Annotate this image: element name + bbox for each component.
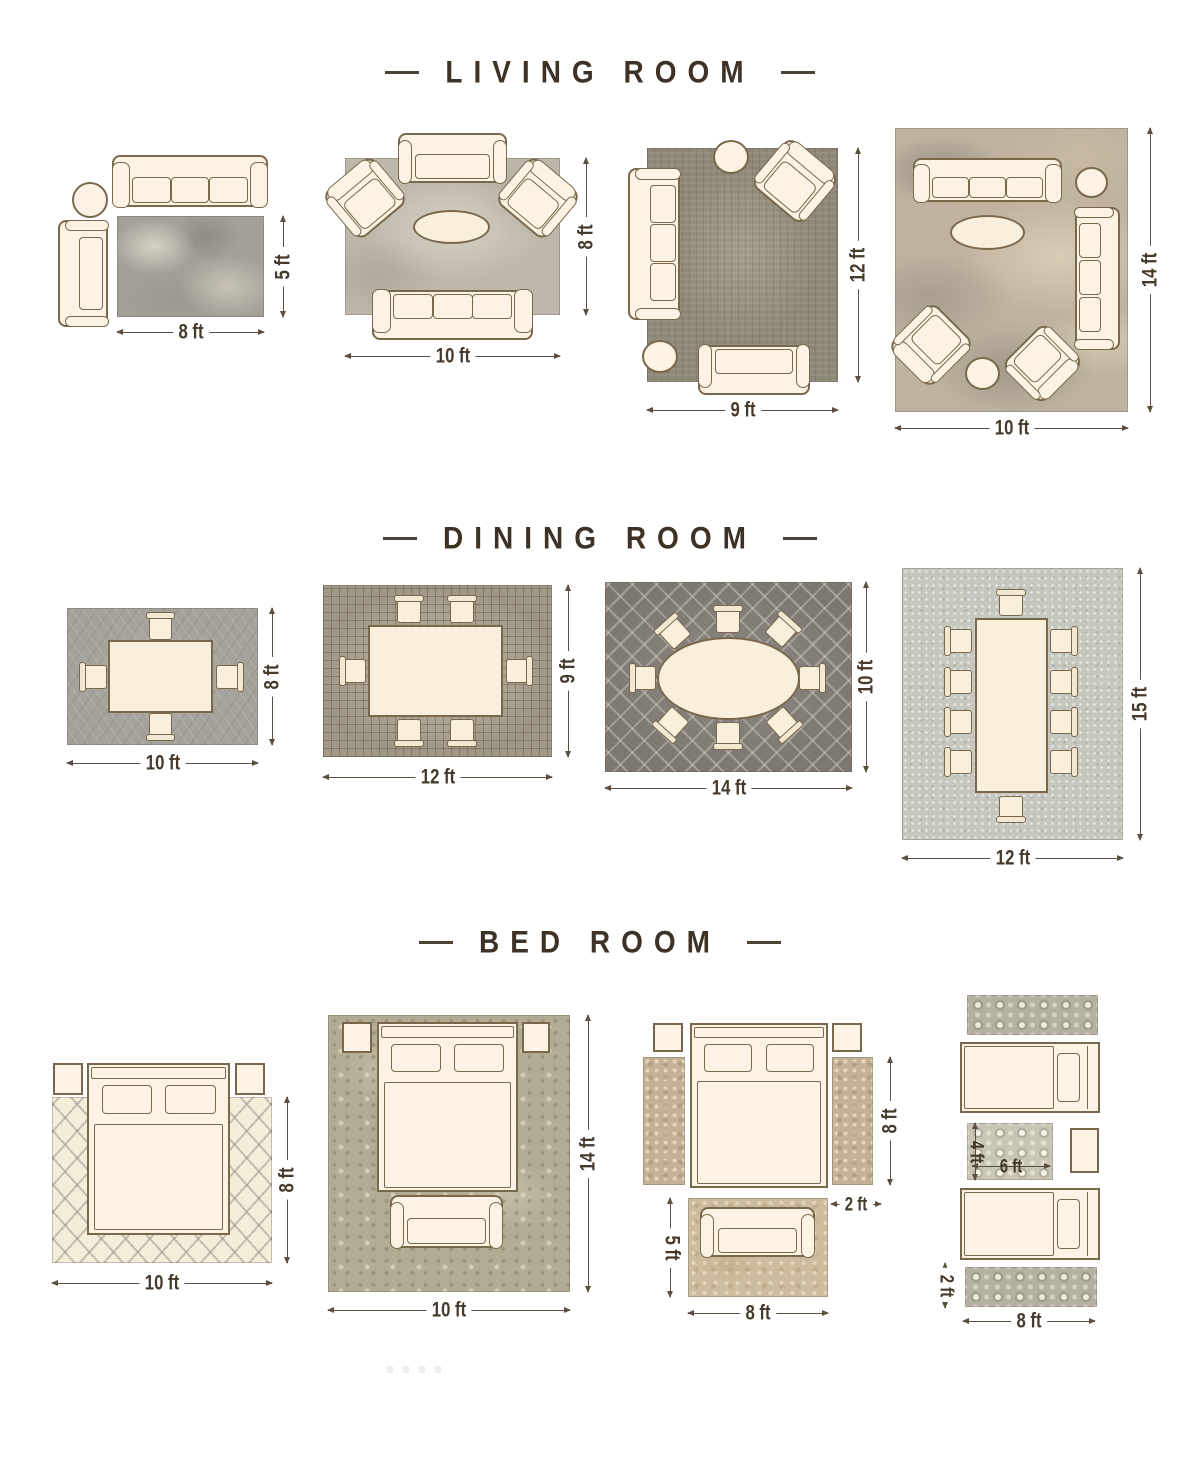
rug-width-dimension: 10 ft xyxy=(67,763,258,764)
cushion xyxy=(1079,260,1101,295)
sofa-icon xyxy=(112,155,268,207)
oval-coffee-table-icon xyxy=(950,215,1025,250)
round-side-table-icon xyxy=(713,140,749,174)
round-side-table-icon xyxy=(1075,167,1108,198)
pillow xyxy=(1057,1199,1080,1249)
pillow xyxy=(454,1044,503,1072)
chair-back xyxy=(629,663,636,693)
dimension-label: 10 ft xyxy=(427,1299,472,1324)
rug-width-dimension: 8 ft xyxy=(117,332,264,333)
chair-seat xyxy=(634,666,656,690)
chair-seat xyxy=(506,659,528,683)
living-room-layout-10x8: 10 ft 8 ft xyxy=(332,128,607,368)
chair-back xyxy=(996,816,1026,823)
chair-back xyxy=(713,605,743,612)
rug-height-dimension: 12 ft xyxy=(858,148,859,382)
dining-chair-icon xyxy=(1048,668,1075,696)
dining-chair-icon xyxy=(1048,627,1075,655)
dining-chair-icon xyxy=(147,711,174,738)
chair-back xyxy=(713,743,743,750)
dimension-label: 12 ft xyxy=(990,847,1035,872)
chair-seat xyxy=(397,600,421,623)
rug-height-dimension: 14 ft xyxy=(1150,128,1151,412)
dimension-label: 6 ft xyxy=(995,1156,1028,1178)
section-header-living-room: LIVING ROOM xyxy=(0,56,1200,88)
cushion xyxy=(79,237,103,309)
cushion xyxy=(718,1228,798,1252)
header-dash-right xyxy=(747,941,781,944)
dining-chair-icon xyxy=(947,627,974,655)
chair-seat xyxy=(999,796,1023,818)
cushion xyxy=(472,294,512,319)
chair-back xyxy=(944,747,951,777)
sofa-arm xyxy=(635,308,681,320)
loveseat-icon xyxy=(698,345,810,395)
chair-arm xyxy=(65,220,109,231)
chair-back xyxy=(1071,747,1078,777)
chair-back xyxy=(237,662,244,692)
sofa-arm xyxy=(698,344,712,388)
dining-room-layout-10x8: 10 ft 8 ft xyxy=(60,600,300,775)
dimension-label: 10 ft xyxy=(989,417,1034,442)
rug-size-guide: LIVING ROOM 8 ft 5 ft xyxy=(0,0,1200,1467)
blanket xyxy=(384,1082,511,1187)
blanket xyxy=(697,1081,822,1183)
dining-chair-icon xyxy=(342,657,368,685)
dimension-label: 9 ft xyxy=(557,651,582,690)
dining-chair-icon xyxy=(448,598,476,625)
living-room-layout-10x14: 10 ft 14 ft xyxy=(888,120,1178,450)
dining-table-icon xyxy=(975,618,1048,793)
cushion xyxy=(650,185,675,223)
dimension-label: 10 ft xyxy=(430,345,475,370)
mattress xyxy=(964,1192,1054,1256)
headboard xyxy=(381,1026,514,1038)
header-dash-left xyxy=(385,71,419,74)
chair-seat xyxy=(149,713,172,736)
chair-seat xyxy=(999,594,1023,616)
chair-seat xyxy=(799,666,821,690)
dining-table-icon xyxy=(108,640,213,713)
bed-icon xyxy=(377,1022,518,1192)
dimension-label: 8 ft xyxy=(1011,1310,1047,1335)
chaise-chair-icon xyxy=(58,220,108,327)
chair-back xyxy=(146,734,175,741)
cushion xyxy=(1079,223,1101,258)
nightstand-icon xyxy=(1070,1128,1099,1173)
dining-chair-icon xyxy=(504,657,530,685)
cushion xyxy=(715,349,793,373)
chair-back xyxy=(79,662,86,692)
chair-seat xyxy=(716,610,740,633)
sofa-arm xyxy=(493,140,507,184)
sofa-arm xyxy=(372,289,391,333)
bench-icon xyxy=(700,1207,815,1257)
chair-seat xyxy=(149,617,172,640)
cushion xyxy=(969,177,1006,199)
rug-height-dimension: 8 ft xyxy=(287,1097,288,1263)
bench-arm xyxy=(801,1214,815,1258)
dining-chair-icon xyxy=(797,664,823,692)
nightstand-icon xyxy=(832,1023,862,1052)
dining-chair-icon xyxy=(997,794,1025,820)
sofa-arm xyxy=(1074,339,1114,350)
sofa-arm xyxy=(514,289,533,333)
cushion xyxy=(1006,177,1043,199)
chair-back xyxy=(944,626,951,656)
rug-width-dimension: 9 ft xyxy=(647,410,838,411)
living-room-layout-8x5: 8 ft 5 ft xyxy=(52,148,302,353)
chair-seat xyxy=(84,665,107,689)
dining-chair-icon xyxy=(947,668,974,696)
section-header-dining-room: DINING ROOM xyxy=(0,522,1200,554)
chair-back xyxy=(447,740,477,747)
header-dash-right xyxy=(783,537,817,540)
rug-width-dimension: 10 ft xyxy=(895,428,1128,429)
dimension-label: 8 ft xyxy=(261,657,286,696)
sofa-arm xyxy=(796,344,810,388)
chair-back xyxy=(339,656,346,686)
chair-back xyxy=(447,595,477,602)
runner-width-dimension: 8 ft xyxy=(963,1321,1095,1322)
cushion xyxy=(1079,297,1101,332)
headboard xyxy=(694,1027,824,1038)
nightstand-icon xyxy=(53,1063,83,1095)
chair-seat xyxy=(450,719,474,742)
dining-room-layout-14x10: 14 ft 10 ft xyxy=(600,575,885,810)
chair-back xyxy=(1071,707,1078,737)
runner-height-dimension: 8 ft xyxy=(890,1057,891,1185)
chair-seat xyxy=(344,659,366,683)
nightstand-icon xyxy=(235,1063,265,1095)
rug-height-dimension: 5 ft xyxy=(670,1198,671,1297)
bench-arm xyxy=(489,1202,503,1249)
runner-rug xyxy=(643,1057,685,1185)
chair-seat xyxy=(949,670,972,694)
dimension-label: 8 ft xyxy=(276,1160,301,1199)
cushion xyxy=(650,224,675,262)
rug-height-dimension: 14 ft xyxy=(588,1015,589,1292)
rug-height-dimension: 5 ft xyxy=(283,216,284,317)
cushion xyxy=(171,177,210,203)
sofa-arm xyxy=(1045,164,1062,203)
section-title: DINING ROOM xyxy=(443,520,757,556)
sofa-arm xyxy=(398,140,412,184)
dimension-label: 5 ft xyxy=(659,1228,684,1267)
dining-chair-icon xyxy=(395,598,423,625)
rug-width-dimension: 14 ft xyxy=(605,788,852,789)
sofa-icon xyxy=(913,158,1062,202)
pillow xyxy=(391,1044,440,1072)
chair-back xyxy=(526,656,533,686)
chair-seat xyxy=(949,750,972,774)
dimension-label: 8 ft xyxy=(879,1101,904,1140)
pillow xyxy=(165,1085,215,1114)
living-room-layout-9x12: 9 ft 12 ft xyxy=(618,138,878,428)
chair-back xyxy=(1071,667,1078,697)
dining-chair-icon xyxy=(1048,708,1075,736)
bench-arm xyxy=(390,1202,404,1249)
runner-rug xyxy=(832,1057,873,1185)
pillow xyxy=(1057,1053,1080,1103)
faint-artifact xyxy=(387,1366,443,1373)
dining-chair-icon xyxy=(997,592,1025,618)
dining-table-icon xyxy=(368,625,503,717)
chair-back xyxy=(394,740,424,747)
dimension-label: 14 ft xyxy=(706,777,751,802)
rug-width-dimension: 12 ft xyxy=(323,777,552,778)
rug-height-dimension: 8 ft xyxy=(586,158,587,315)
cushion xyxy=(407,1218,486,1244)
loveseat-icon xyxy=(398,133,507,183)
round-side-table-icon xyxy=(965,357,1000,390)
dining-chair-icon xyxy=(714,608,742,635)
nightstand-icon xyxy=(522,1022,550,1053)
chair-seat xyxy=(949,710,972,734)
bench-icon xyxy=(390,1195,503,1248)
runner-width-dimension: 2 ft xyxy=(831,1204,881,1205)
header-dash-left xyxy=(419,941,453,944)
chair-seat xyxy=(216,665,239,689)
round-side-table-icon xyxy=(72,182,108,218)
runner-rug xyxy=(965,1267,1097,1307)
dimension-label: 10 ft xyxy=(140,752,185,777)
dimension-label: 10 ft xyxy=(855,653,880,701)
rug-height-dimension: 8 ft xyxy=(272,608,273,745)
cushion xyxy=(132,177,171,203)
nightstand-icon xyxy=(653,1023,683,1052)
chair-seat xyxy=(716,722,740,745)
bedroom-layout-twin-runners: 4 ft 6 ft 2 ft 8 ft xyxy=(930,990,1185,1335)
dimension-label: 12 ft xyxy=(847,241,872,289)
bedroom-layout-runners-5x8: 8 ft 2 ft 5 ft 8 ft xyxy=(635,1015,900,1330)
dining-chair-icon xyxy=(147,615,174,642)
dimension-label: 10 ft xyxy=(140,1272,185,1297)
dining-room-layout-12x15: 12 ft 15 ft xyxy=(895,560,1155,870)
dining-chair-icon xyxy=(1048,748,1075,776)
sofa-icon xyxy=(372,290,533,340)
sofa-arm xyxy=(1074,207,1114,218)
dining-room-layout-12x9: 12 ft 9 ft xyxy=(318,578,580,793)
chair-back xyxy=(394,595,424,602)
dimension-label: 5 ft xyxy=(272,247,297,286)
nightstand-icon xyxy=(342,1022,372,1053)
cushion xyxy=(415,154,491,178)
rug-height-dimension: 4 ft xyxy=(975,1123,976,1180)
header-dash-right xyxy=(781,71,815,74)
dimension-label: 2 ft xyxy=(840,1194,873,1216)
mattress xyxy=(964,1046,1054,1109)
chair-seat xyxy=(450,600,474,623)
dining-chair-icon xyxy=(947,708,974,736)
dimension-label: 14 ft xyxy=(1139,246,1164,294)
chair-back xyxy=(944,667,951,697)
rug-width-dimension: 8 ft xyxy=(688,1313,828,1314)
oval-coffee-table-icon xyxy=(413,210,490,244)
chair-seat xyxy=(1050,710,1073,734)
bed-icon xyxy=(87,1063,230,1235)
round-side-table-icon xyxy=(642,340,678,373)
cushion xyxy=(932,177,969,199)
rug xyxy=(117,216,264,317)
rug-height-dimension: 9 ft xyxy=(568,585,569,757)
headboard xyxy=(91,1067,226,1079)
dimension-label: 8 ft xyxy=(173,321,209,346)
sofa-arm xyxy=(913,164,930,203)
twin-bed-icon xyxy=(960,1042,1100,1113)
chair-back xyxy=(996,589,1026,596)
headboard xyxy=(1087,1046,1088,1109)
cushion xyxy=(209,177,248,203)
twin-bed-icon xyxy=(960,1188,1100,1260)
dimension-label: 14 ft xyxy=(577,1129,602,1177)
rug-width-dimension: 10 ft xyxy=(52,1283,272,1284)
sofa-icon xyxy=(1075,207,1120,350)
bench-arm xyxy=(700,1214,714,1258)
dining-chair-icon xyxy=(214,663,241,691)
rug-width-dimension: 12 ft xyxy=(902,858,1123,859)
cushion xyxy=(650,263,675,301)
section-title: LIVING ROOM xyxy=(445,54,754,90)
bed-icon xyxy=(690,1023,828,1188)
chair-seat xyxy=(1050,629,1073,653)
dining-chair-icon xyxy=(632,664,658,692)
dimension-label: 9 ft xyxy=(725,399,761,424)
chair-back xyxy=(1071,626,1078,656)
dining-chair-icon xyxy=(714,720,742,747)
dining-chair-icon xyxy=(448,717,476,744)
chair-seat xyxy=(1050,670,1073,694)
header-dash-left xyxy=(383,537,417,540)
chair-back xyxy=(944,707,951,737)
bedroom-layout-10x14: 10 ft 14 ft xyxy=(320,1008,610,1320)
dining-chair-icon xyxy=(82,663,109,691)
section-header-bed-room: BED ROOM xyxy=(0,926,1200,958)
chair-back xyxy=(146,612,175,619)
rug-width-dimension: 10 ft xyxy=(328,1310,570,1311)
sofa-arm xyxy=(112,162,130,208)
chair-seat xyxy=(949,629,972,653)
pillow xyxy=(102,1085,152,1114)
dimension-label: 12 ft xyxy=(415,766,460,791)
pillow xyxy=(766,1044,814,1071)
runner-height-dimension: 2 ft xyxy=(945,1263,946,1308)
dining-chair-icon xyxy=(947,748,974,776)
chair-arm xyxy=(65,316,109,327)
rug-height-dimension: 15 ft xyxy=(1140,568,1141,840)
sofa-arm xyxy=(250,162,268,208)
sofa-icon xyxy=(628,168,680,320)
cushion xyxy=(433,294,473,319)
pillow xyxy=(704,1044,752,1071)
cushion xyxy=(393,294,433,319)
bedroom-layout-10x8: 10 ft 8 ft xyxy=(42,1055,302,1295)
rug-width-dimension: 10 ft xyxy=(345,356,560,357)
section-title: BED ROOM xyxy=(479,924,721,960)
dimension-label: 2 ft xyxy=(935,1267,957,1304)
chair-back xyxy=(819,663,826,693)
rug-height-dimension: 10 ft xyxy=(866,582,867,772)
headboard xyxy=(1087,1192,1088,1256)
sofa-arm xyxy=(635,168,681,180)
rug-width-dimension: 6 ft xyxy=(972,1166,1050,1167)
runner-rug xyxy=(967,995,1098,1035)
dining-chair-icon xyxy=(395,717,423,744)
dimension-label: 8 ft xyxy=(740,1302,776,1327)
chair-seat xyxy=(1050,750,1073,774)
dimension-label: 8 ft xyxy=(575,217,600,256)
blanket xyxy=(94,1124,223,1231)
chair-seat xyxy=(397,719,421,742)
dimension-label: 15 ft xyxy=(1129,680,1154,728)
